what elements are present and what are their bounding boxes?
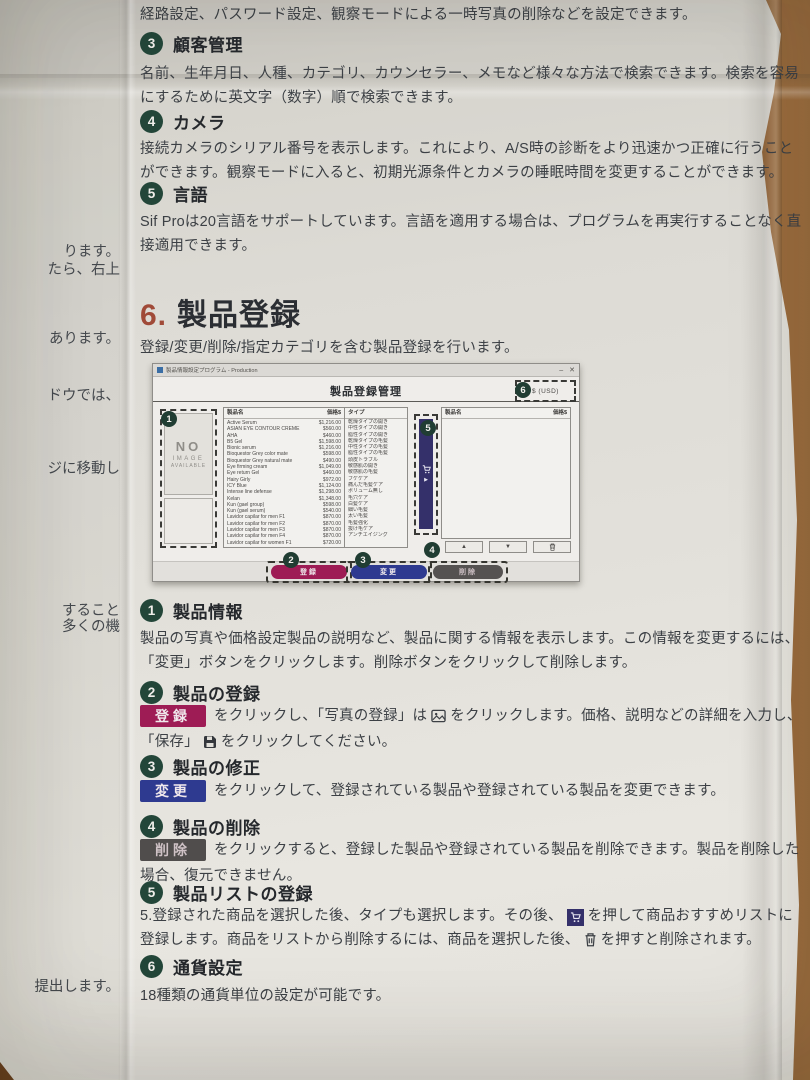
move-down-button: ▼: [489, 541, 527, 553]
type-rows: 乾燥タイプの開き 中性タイプの開き 脂性タイプの開き 乾燥タイプの毛髪 中性タイ…: [345, 419, 407, 539]
up-arrow-icon: ▲: [461, 544, 467, 550]
section-body-product-register: 登録をクリックし、「写真の登録」はをクリックします。価格、説明などの詳細を入力し…: [140, 703, 802, 755]
section-number-badge: 4: [140, 815, 163, 838]
section-heading-product-register: 2 製品の登録: [140, 680, 261, 705]
section-number-badge: 6: [140, 955, 163, 978]
margin-fragment: 提出します。: [34, 975, 120, 996]
selected-list-table: 製品名 価格$: [441, 407, 571, 539]
section-body-product-info: 製品の写真や価格設定製品の説明など、製品に関する情報を表示します。この情報を変更…: [140, 627, 802, 675]
section-number-badge: 5: [140, 881, 163, 904]
section-title: 製品の登録: [173, 680, 261, 705]
down-arrow-icon: ▼: [505, 544, 511, 550]
register-button-inline: 登録: [140, 705, 206, 727]
section-heading-customer: 3 顧客管理: [140, 31, 243, 56]
section-title: 製品リストの登録: [173, 880, 313, 905]
body-text: をクリックしてください。: [221, 734, 397, 750]
trash-icon: [549, 543, 556, 551]
window-title: 製品情報設定プログラム - Production: [166, 366, 553, 374]
body-text: をクリックし、「写真の登録」は: [214, 708, 427, 724]
no-image-text: IMAGE: [173, 456, 205, 462]
section-number-badge: 5: [140, 182, 163, 205]
annotation-badge-6: 6: [515, 382, 531, 398]
delete-button: 削除: [433, 565, 503, 579]
modify-button-inline: 変更: [140, 780, 206, 802]
section-heading-product-info: 1 製品情報: [140, 598, 243, 623]
currency-label: $ (USD): [532, 388, 559, 395]
section-number-badge: 2: [140, 681, 163, 704]
chapter-title: 製品登録: [177, 299, 301, 332]
margin-fragment: あります。: [49, 327, 120, 348]
selected-list-header: 製品名 価格$: [442, 408, 570, 419]
type-column: タイプ 乾燥タイプの開き 中性タイプの開き 脂性タイプの開き 乾燥タイプの毛髪 …: [345, 407, 408, 548]
section-heading-camera: 4 カメラ: [140, 109, 226, 134]
product-name: Lavidor capilar for women F1: [227, 540, 320, 546]
section-body-product-modify: 変更をクリックして、登録されている製品や登録されている製品を変更できます。: [140, 778, 802, 804]
column-price: 価格$: [553, 410, 567, 416]
annotation-badge-2: 2: [283, 552, 299, 568]
chapter-heading: 6.製品登録: [140, 290, 301, 334]
move-up-button: ▲: [445, 541, 483, 553]
section-title: 製品情報: [173, 598, 243, 623]
section-body-currency: 18種類の通貨単位の設定が可能です。: [140, 984, 802, 1008]
product-row: Lavidor capilar for women F1 $720.00: [227, 540, 341, 546]
column-type: タイプ: [348, 410, 365, 416]
body-text: をクリックすると、登録した製品や登録されている製品を削除できます。製品を削除した…: [140, 842, 800, 884]
annotation-badge-3: 3: [355, 552, 371, 568]
body-text: をクリックします。価格、説明などの詳細を入力し、: [450, 708, 801, 724]
section-title: 言語: [173, 181, 208, 206]
margin-fragment: ドウでは、: [48, 384, 121, 405]
chapter-number: 6.: [140, 299, 167, 332]
app-icon: [157, 367, 163, 373]
delete-button-inline: 削除: [140, 839, 206, 861]
type-column-header: タイプ: [345, 408, 407, 419]
section-number-badge: 1: [140, 599, 163, 622]
section-title: 顧客管理: [173, 31, 243, 56]
product-registration-window: 製品情報設定プログラム - Production – ✕ 製品登録管理 6 $ …: [152, 363, 580, 582]
section-body-customer: 名前、生年月日、人種、カテゴリ、カウンセラー、メモなど様々な方法で検索できます。…: [140, 62, 802, 110]
body-text: をクリックして、登録されている製品や登録されている製品を変更できます。: [214, 783, 725, 799]
section-heading-product-modify: 3 製品の修正: [140, 754, 261, 779]
product-table-header: 製品名 価格$: [224, 408, 344, 419]
annotation-badge-1: 1: [161, 411, 177, 427]
cart-button-inline: [567, 909, 584, 926]
body-text: 「保存」: [140, 734, 199, 750]
section-heading-product-list: 5 製品リストの登録: [140, 880, 313, 905]
section-number-badge: 3: [140, 755, 163, 778]
product-price: $720.00: [323, 540, 341, 546]
margin-fragment: ジに移動し: [48, 457, 121, 478]
margin-fragment: たら、右上: [48, 258, 121, 279]
minimize-icon: –: [559, 367, 563, 374]
annotation-badge-4: 4: [424, 542, 440, 558]
section-title: 通貨設定: [173, 954, 243, 979]
annotation-badge-5: 5: [420, 420, 436, 436]
cart-icon: [422, 465, 431, 474]
column-name: 製品名: [445, 410, 462, 416]
section-title: 製品の削除: [173, 814, 261, 839]
delete-from-list-button: [533, 541, 571, 553]
product-description-box: [164, 498, 213, 544]
body-text: 5.登録された商品を選択した後、タイプも選択します。その後、: [140, 908, 563, 924]
column-price: 価格$: [327, 410, 341, 416]
intro-line: 経路設定、パスワード設定、観察モードによる一時写真の削除などを設定できます。: [140, 4, 800, 27]
margin-fragment: 多くの機: [62, 615, 120, 636]
no-image-text: NO: [176, 439, 202, 454]
product-table: 製品名 価格$ Active Serum $1,216.00 ASIAN EYE…: [223, 407, 345, 548]
close-icon: ✕: [569, 366, 575, 374]
section-heading-product-delete: 4 製品の削除: [140, 814, 261, 839]
no-image-text: AVAILABLE: [171, 463, 206, 469]
section-body-product-list: 5.登録された商品を選択した後、タイプも選択します。その後、を押して商品おすすめ…: [140, 904, 802, 952]
column-name: 製品名: [227, 410, 244, 416]
product-type: アンチエイジング: [345, 532, 407, 538]
photo-icon: [431, 709, 446, 723]
cart-icon: [570, 912, 581, 923]
section-body-language: Sif Proは20言語をサポートしています。言語を適用する場合は、プログラムを…: [140, 210, 802, 258]
product-rows: Active Serum $1,216.00 ASIAN EYE CONTOUR…: [224, 419, 344, 547]
section-body-camera: 接続カメラのシリアル番号を表示します。これにより、A/S時の診断をより迅速かつ正…: [140, 137, 802, 185]
section-heading-currency: 6 通貨設定: [140, 954, 243, 979]
body-text: を押すと削除されます。: [601, 932, 761, 948]
register-button: 登録: [271, 565, 347, 579]
trash-icon: [584, 932, 597, 947]
product-info-panel: NO IMAGE AVAILABLE: [160, 409, 217, 548]
chapter-subtitle: 登録/変更/削除/指定カテゴリを含む製品登録を行います。: [140, 336, 802, 360]
section-number-badge: 4: [140, 110, 163, 133]
window-titlebar: 製品情報設定プログラム - Production – ✕: [153, 364, 579, 377]
section-title: 製品の修正: [173, 754, 261, 779]
section-number-badge: 3: [140, 32, 163, 55]
play-icon: ▶: [424, 478, 428, 483]
section-title: カメラ: [173, 109, 226, 134]
section-heading-language: 5 言語: [140, 181, 208, 206]
save-icon: [203, 735, 217, 749]
